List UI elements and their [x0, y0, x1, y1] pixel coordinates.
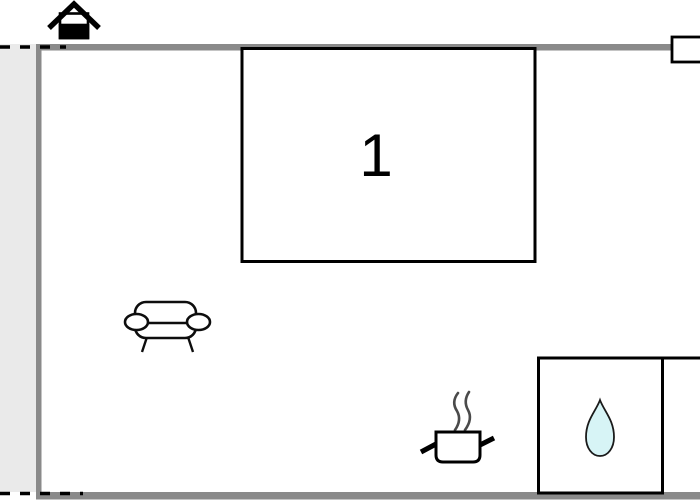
room-1-label: 1 [359, 122, 392, 189]
wall-left [36, 44, 42, 499]
sofa-armrest-left [125, 314, 148, 330]
window-top-right [672, 37, 700, 62]
house-icon-base [60, 25, 88, 38]
terrace-strip [0, 44, 36, 492]
sofa-armrest-right [187, 314, 210, 330]
room-1: 1 [242, 49, 535, 262]
pot-body [436, 432, 480, 462]
floorplan-drawing: 1 [0, 0, 700, 500]
floorplan-canvas: 1 [0, 0, 700, 500]
